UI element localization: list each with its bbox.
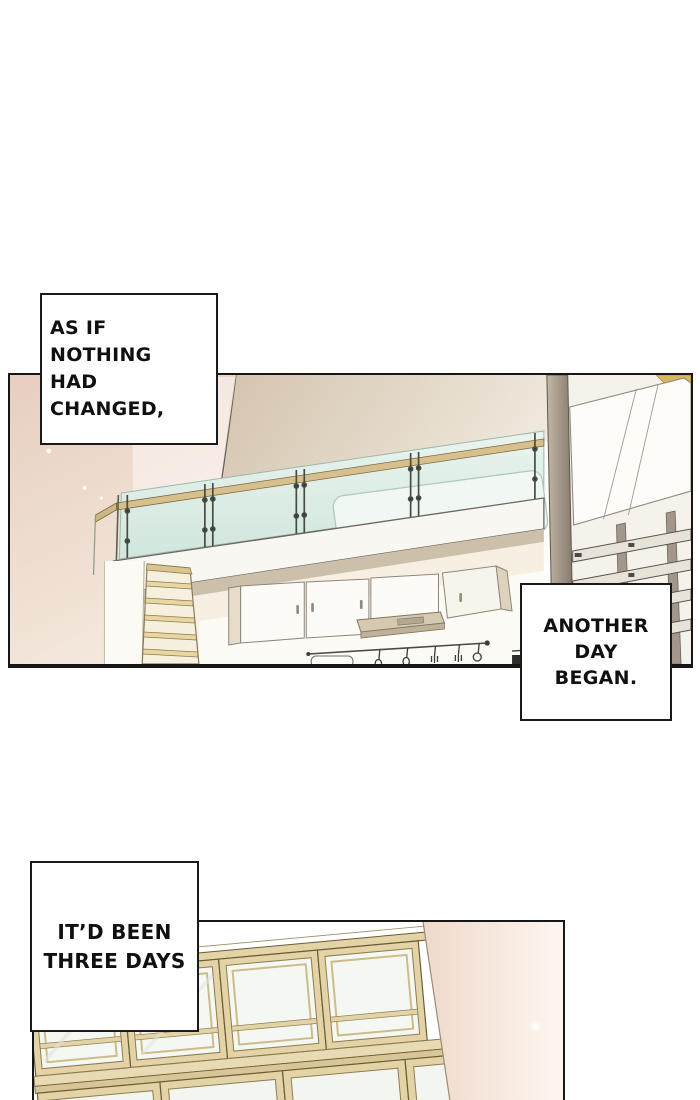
caption-box-3: IT’D BEEN THREE DAYS xyxy=(30,861,199,1032)
caption-text: HAD CHANGED, xyxy=(50,369,212,423)
caption-box-2: ANOTHER DAY BEGAN. xyxy=(520,583,672,721)
caption-text: IT’D BEEN xyxy=(32,918,197,947)
comic-page: AS IF NOTHING HAD CHANGED, ANOTHER DAY B… xyxy=(0,0,700,1100)
shelf-unit xyxy=(142,564,199,664)
caption-text: DAY xyxy=(522,639,670,665)
caption-text: ANOTHER xyxy=(522,613,670,639)
caption-text: BEGAN. xyxy=(522,665,670,691)
caption-text: AS IF NOTHING xyxy=(50,315,212,369)
wall-sparkle xyxy=(529,1021,541,1033)
caption-text: THREE DAYS xyxy=(32,947,197,976)
caption-box-1: AS IF NOTHING HAD CHANGED, xyxy=(40,293,218,445)
